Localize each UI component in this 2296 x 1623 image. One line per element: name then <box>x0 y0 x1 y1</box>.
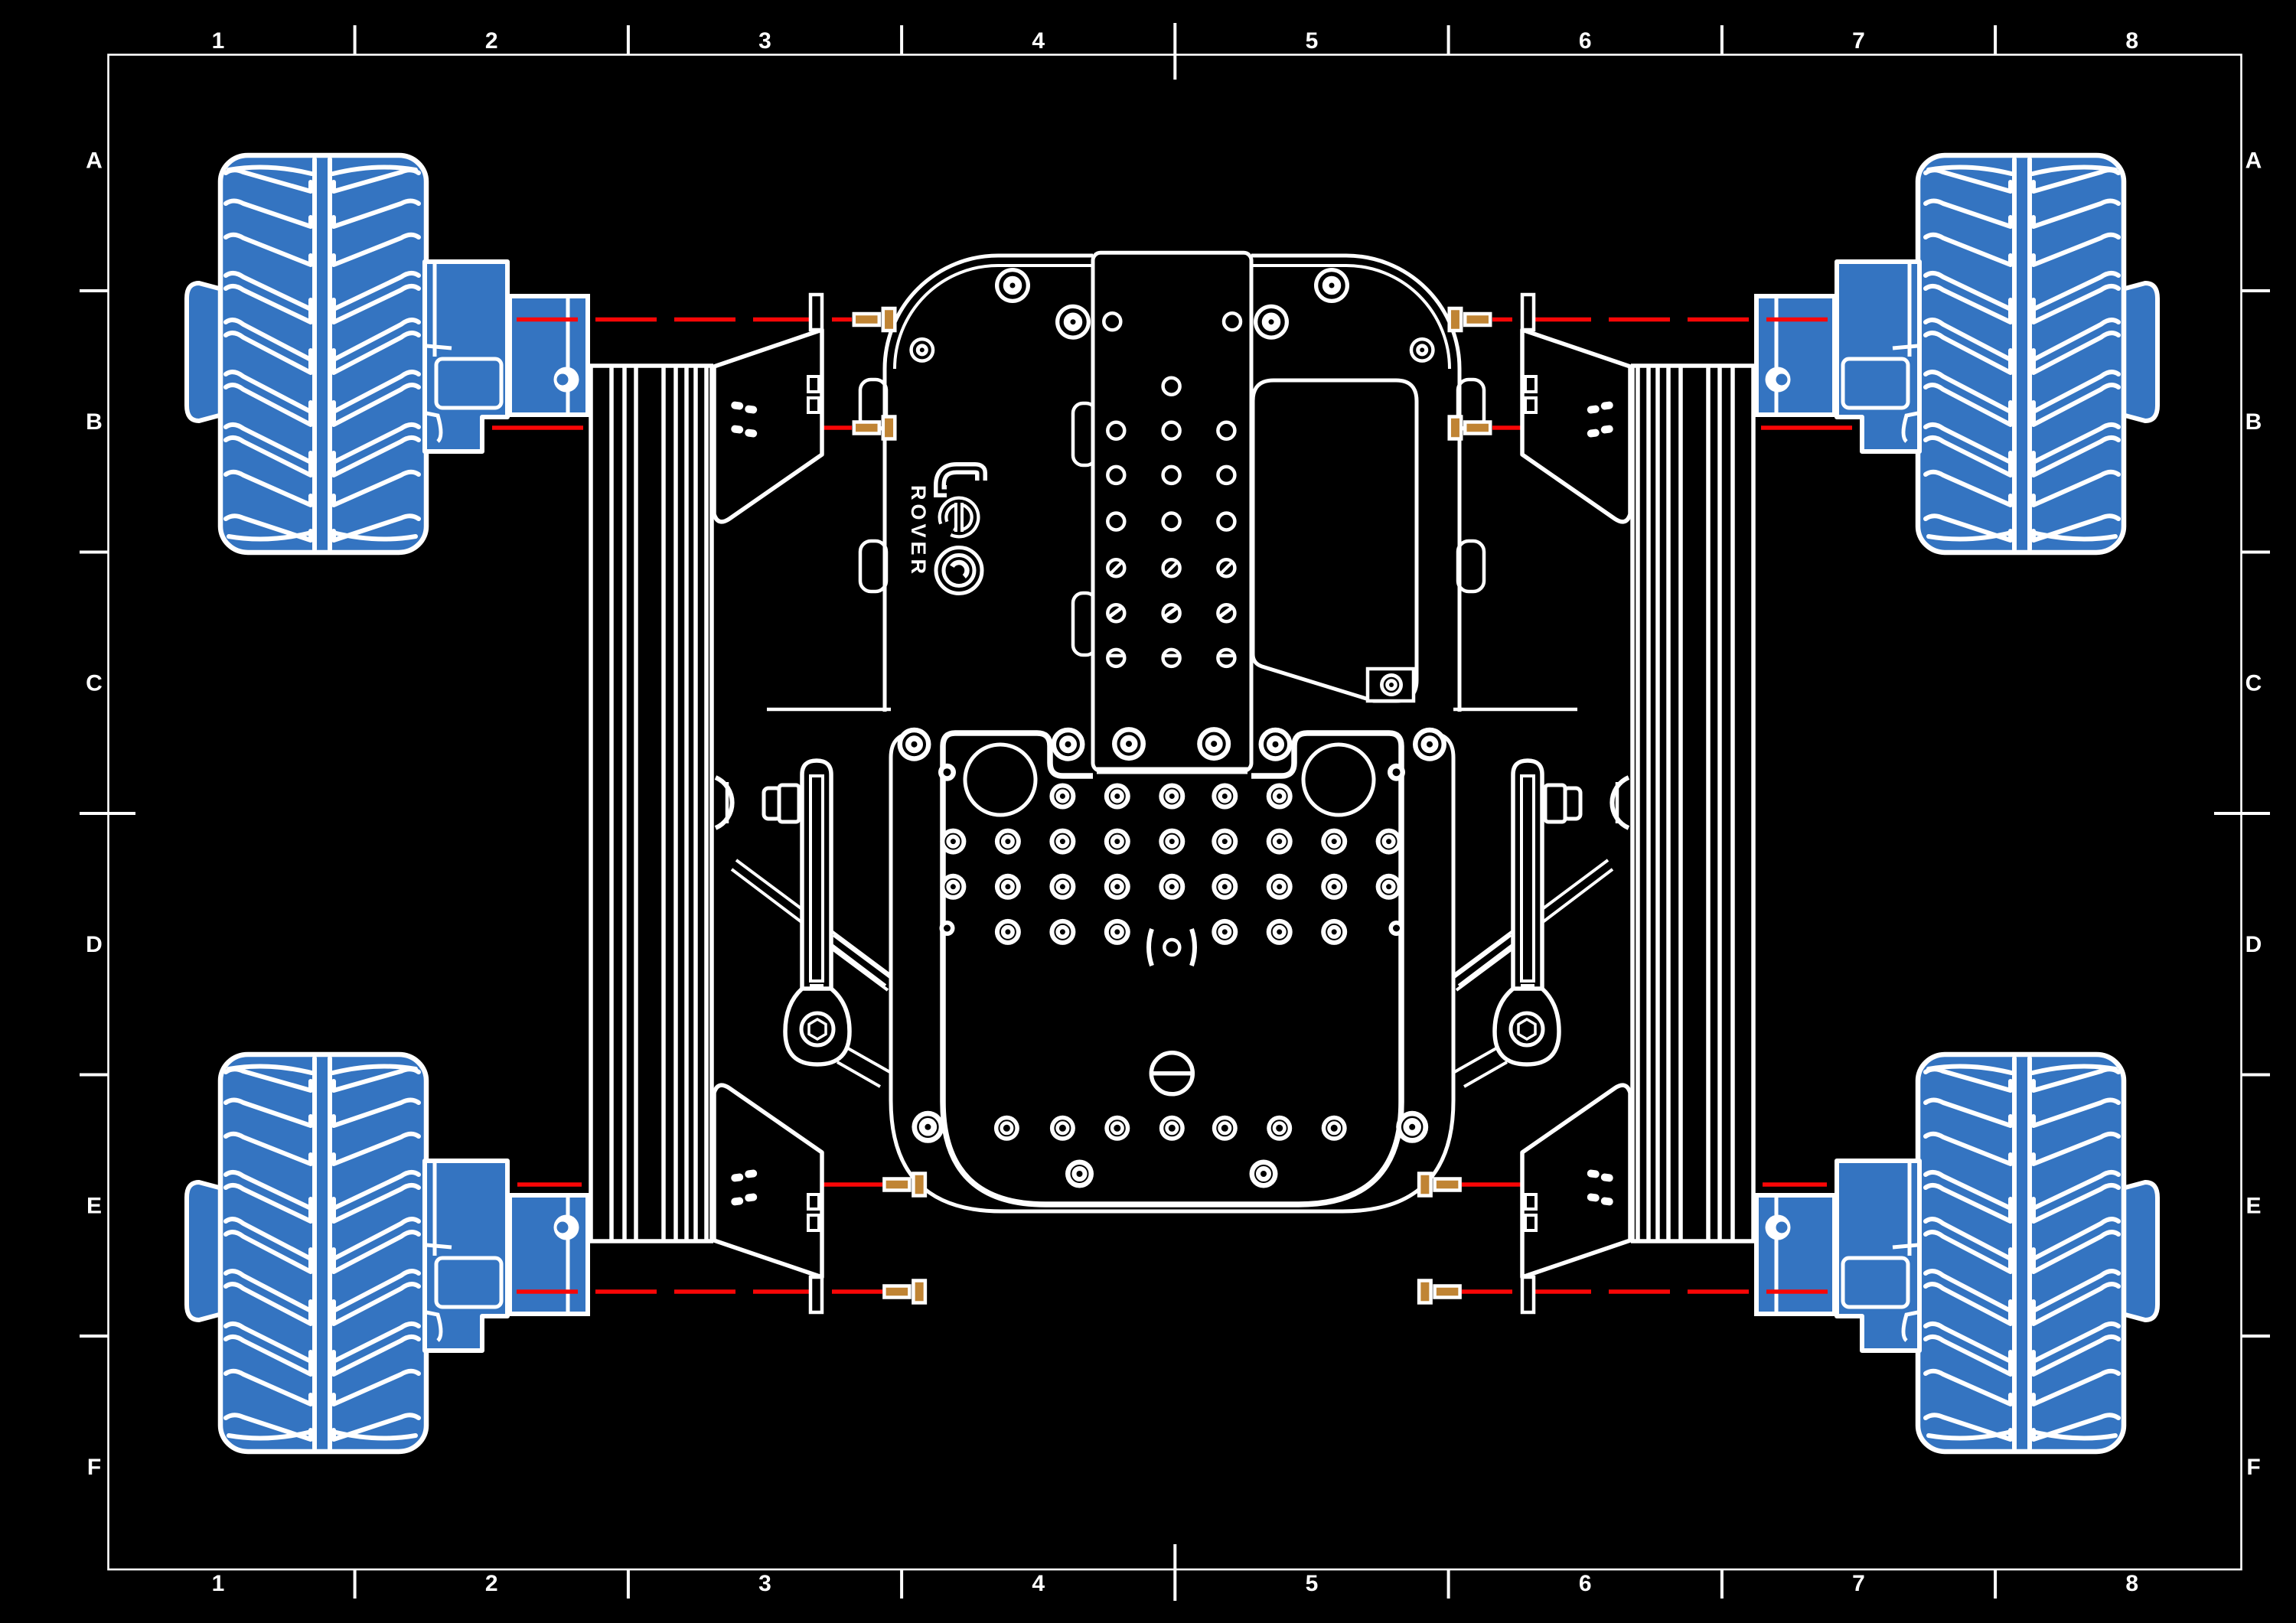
svg-text:B: B <box>2245 409 2262 435</box>
svg-text:8: 8 <box>2125 28 2138 54</box>
svg-text:3: 3 <box>758 1571 771 1596</box>
svg-text:3: 3 <box>758 28 771 54</box>
svg-text:4: 4 <box>1032 28 1045 54</box>
svg-text:E: E <box>2245 1193 2261 1218</box>
svg-text:1: 1 <box>212 1571 225 1596</box>
svg-text:8: 8 <box>2125 1571 2138 1596</box>
svg-text:6: 6 <box>1579 1571 1592 1596</box>
svg-text:C: C <box>86 670 103 696</box>
svg-text:B: B <box>86 409 103 435</box>
svg-text:A: A <box>86 148 103 173</box>
svg-text:A: A <box>2245 148 2262 173</box>
svg-text:1: 1 <box>212 28 225 54</box>
svg-text:C: C <box>2245 670 2262 696</box>
svg-text:6: 6 <box>1579 28 1592 54</box>
svg-text:2: 2 <box>485 28 498 54</box>
svg-text:D: D <box>2245 932 2262 957</box>
svg-text:4: 4 <box>1032 1571 1045 1596</box>
svg-text:5: 5 <box>1306 1571 1319 1596</box>
svg-text:7: 7 <box>1852 1571 1865 1596</box>
svg-text:5: 5 <box>1306 28 1319 54</box>
svg-text:E: E <box>86 1193 102 1218</box>
svg-text:F: F <box>2246 1455 2260 1480</box>
svg-text:ROVER: ROVER <box>907 485 930 578</box>
svg-text:2: 2 <box>485 1571 498 1596</box>
svg-text:7: 7 <box>1852 28 1865 54</box>
svg-text:F: F <box>87 1455 101 1480</box>
svg-text:D: D <box>86 932 103 957</box>
